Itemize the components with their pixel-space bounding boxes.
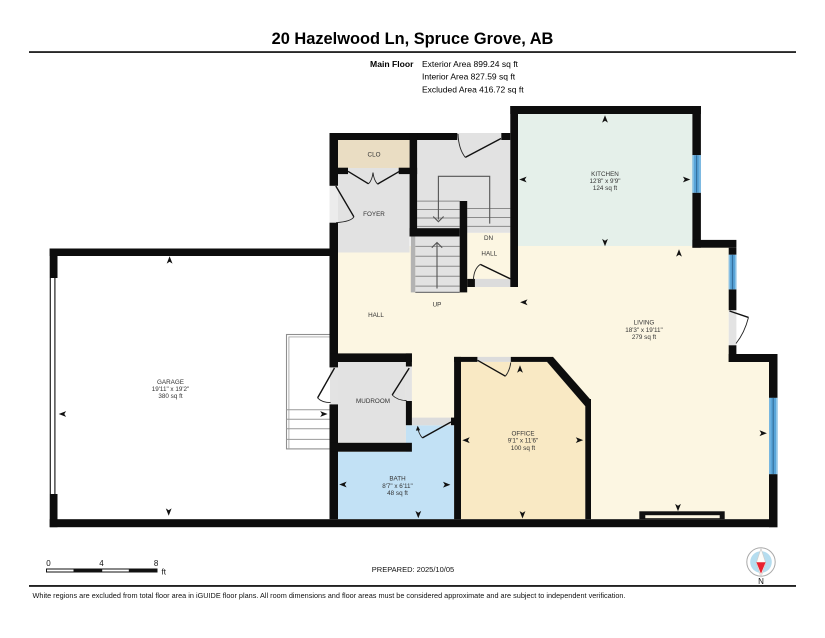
svg-text:FOYER: FOYER [363, 211, 385, 218]
svg-text:Main Floor: Main Floor [370, 59, 414, 69]
svg-text:18'3" x 19'11": 18'3" x 19'11" [625, 327, 663, 334]
svg-text:PREPARED: 2025/10/05: PREPARED: 2025/10/05 [372, 565, 454, 574]
svg-text:OFFICE: OFFICE [511, 431, 534, 438]
svg-text:HALL: HALL [481, 251, 497, 258]
svg-text:124 sq ft: 124 sq ft [593, 185, 617, 192]
svg-text:White regions are excluded fro: White regions are excluded from total fl… [33, 591, 626, 600]
svg-text:48 sq ft: 48 sq ft [387, 490, 408, 497]
svg-text:Interior Area 827.59 sq ft: Interior Area 827.59 sq ft [422, 72, 516, 82]
svg-text:279 sq ft: 279 sq ft [632, 334, 656, 341]
svg-text:HALL: HALL [368, 312, 384, 319]
svg-text:Excluded Area 416.72 sq ft: Excluded Area 416.72 sq ft [422, 84, 524, 94]
svg-text:12'8" x 9'9": 12'8" x 9'9" [589, 178, 620, 185]
svg-text:20 Hazelwood Ln, Spruce Grove,: 20 Hazelwood Ln, Spruce Grove, AB [272, 30, 554, 48]
svg-text:380 sq ft: 380 sq ft [158, 393, 182, 400]
svg-text:4: 4 [99, 559, 104, 568]
svg-text:KITCHEN: KITCHEN [591, 171, 619, 178]
svg-text:DN: DN [484, 235, 494, 242]
svg-text:BATH: BATH [389, 476, 406, 483]
svg-text:8: 8 [154, 559, 159, 568]
svg-text:0: 0 [46, 559, 51, 568]
svg-text:Exterior Area 899.24 sq ft: Exterior Area 899.24 sq ft [422, 59, 519, 69]
svg-text:N: N [758, 577, 764, 586]
svg-text:LIVING: LIVING [634, 320, 655, 327]
svg-text:GARAGE: GARAGE [157, 379, 184, 386]
svg-text:9'1" x 11'6": 9'1" x 11'6" [508, 438, 539, 445]
svg-text:19'11" x 19'2": 19'11" x 19'2" [152, 386, 190, 393]
svg-text:8'7" x 6'11": 8'7" x 6'11" [382, 483, 413, 490]
svg-text:ft: ft [162, 568, 167, 577]
svg-text:MUDROOM: MUDROOM [356, 398, 390, 405]
svg-text:UP: UP [433, 302, 442, 309]
svg-text:CLO: CLO [368, 152, 381, 159]
svg-text:100 sq ft: 100 sq ft [511, 445, 535, 452]
